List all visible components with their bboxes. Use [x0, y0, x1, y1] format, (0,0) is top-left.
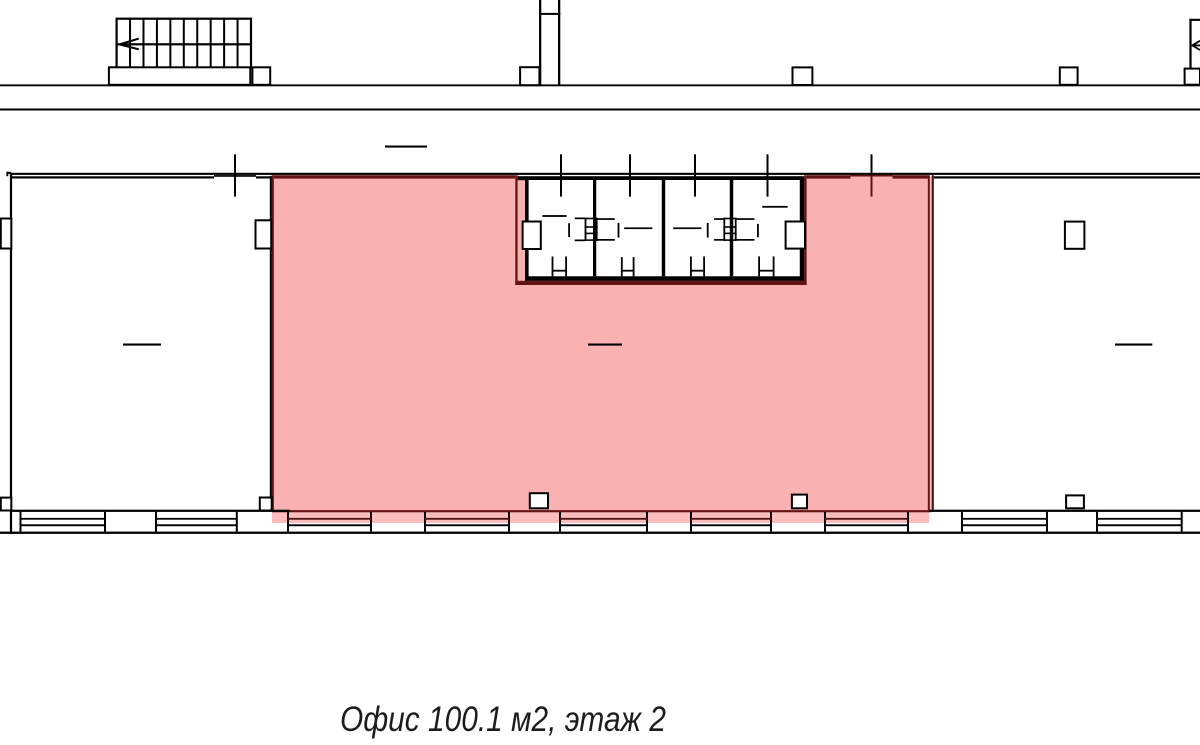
svg-text:Офис 100.1 м2, этаж 2: Офис 100.1 м2, этаж 2 [340, 700, 666, 739]
